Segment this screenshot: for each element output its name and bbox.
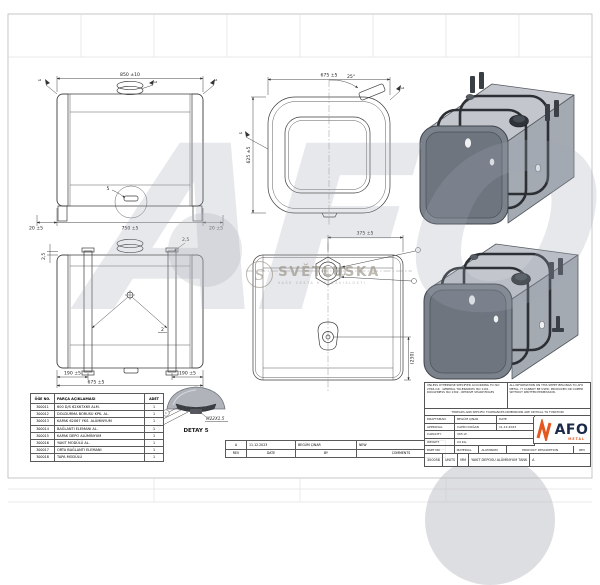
view-front-top: 5 a4 a4 a4 850 ±10 20 ±5 750 ±5 20 ±5 [29,72,223,232]
notes-right: ALL INFORMATION ON THIS SHEET BELONGS TO… [508,383,591,409]
table-row: 300015 KAPAK DEPO ALÜMİNYUM 1 [31,432,164,439]
view-front-straps: 2 2,5 2,5 190 ±5 190 ±5 675 ±5 [41,237,203,388]
col-header-qty: ADET [145,394,164,404]
afo-logo-zigzag-icon [536,419,554,441]
afo-logo-text: AFO [555,423,589,437]
date-label: DATE [497,416,535,424]
part-no-value: 300058 [425,454,443,466]
screw-callout-icon [412,279,417,284]
svg-text:a4: a4 [38,78,42,82]
table-row: 300016 YAKIT MODÜLÜ AL. 1 [31,439,164,446]
table-row: 300014 BAĞLANTI ELEMANI AL. 1 [31,425,164,432]
dim-850: 850 ±10 [120,72,140,78]
dim-2.5-left: 2,5 [41,253,47,260]
title-block: UNLESS OTHERWISE SPECIFIED ACCORDING TO … [424,382,591,467]
screw-callout-icon [416,248,421,253]
parts-table: ÖĞE NO. PARÇA AÇIKLAMASI ADET 300011 600… [30,393,164,462]
units-label: UNITS [443,454,458,466]
svg-text:a4: a4 [154,80,158,84]
dim-675-bottom: 675 ±5 [87,380,104,386]
dim-angle-25: 25° [347,74,355,80]
col-header-description: PARÇA AÇIKLAMASI [55,394,145,404]
rev-label: REV [574,446,590,454]
table-row: 300013 KAPAK 62X67 YKS. ALÜMİNYUM 1 [31,418,164,425]
svg-text:a4: a4 [239,131,243,135]
tank-strap [168,251,176,372]
units-value: MM [458,454,469,466]
view-3d-top-right [420,72,574,224]
svg-text:1: 1 [165,411,167,415]
weight-value: 24 KG. [455,439,535,447]
capacity-label: CAPACITY [425,431,455,439]
weld-symbol-icon: a4 [141,80,158,89]
draftsman-label: DRAFTSMAN [425,416,455,424]
table-row: 300018 TAPA MODÜLÜ 1 [31,454,164,461]
approval-name: CAHİD DOĞAN [455,424,497,432]
view-3d-bottom-right [424,244,578,379]
filler-cap-front [117,239,143,252]
table-row: 300012 DOLDURMA BORUSU KPK. AL. 1 [31,411,164,418]
dim-190-left: 190 ±5 [64,371,81,377]
capacity-value: 305 LT. [455,431,535,439]
critical-note: THREADS AND SPECIFIC TOLERANCES DIMENSIO… [425,409,590,416]
col-header-item-no: ÖĞE NO. [31,394,55,404]
detail-circle [115,186,147,218]
weld-symbol-icon: a4 [390,85,405,100]
part-no-label: PART NO [425,446,455,454]
approval-label: APPROVAL [425,424,455,432]
dim-675-top: 675 ±5 [320,73,337,79]
afo-logo: AFO METAL [533,417,590,445]
draftsman-name: BEGÜM ÇINAR [455,416,497,424]
dim-750: 750 ±5 [121,226,138,232]
detail-view-5: 1 2 3 M22X1.5 DETAY 5 [153,387,228,434]
weight-label: WEIGHT [425,439,455,447]
weld-symbol-icon: a4 [38,78,57,94]
revision-header-row: REV DATE BY COMMENTS [226,449,446,458]
parts-header-row: ÖĞE NO. PARÇA AÇIKLAMASI ADET [31,394,164,404]
dim-190-right: 190 ±5 [179,371,196,377]
view-side-profile: 25° a4 a4 675 ±5 625 ±5 [239,73,405,227]
material-value: ALUMINUM [479,446,507,454]
weld-symbol-icon: a4 [203,78,218,94]
rev-value: A [530,454,536,466]
thread-label: M22X1.5 [206,416,225,421]
revision-table: A 11.12.2023 BEGÜM ÇINAR NEW REV DATE BY… [225,440,446,458]
engineering-drawing-sheet: { "sheet": {"description": "Aluminum fue… [0,0,600,523]
strap-callout: 2 [161,327,164,333]
approval-date: 11.12.2023 [497,424,535,432]
dim-2.5-right: 2,5 [182,237,189,243]
dim-20-right: 20 ±5 [209,226,223,232]
material-label: MATERIAL [455,446,480,454]
view-top: 375 ±5 (230) [246,231,421,393]
svg-text:a4: a4 [214,78,218,82]
filler-cap-front [117,81,143,94]
table-row: 300017 ORTA BAĞLANTI ELEMANI 1 [31,447,164,454]
tank-strap [84,251,92,372]
dim-20-left: 20 ±5 [29,226,43,232]
notes-left: UNLESS OTHERWISE SPECIFIED ACCORDING TO … [425,383,508,409]
afo-logo-subtext: METAL [568,437,585,441]
filler-neck [358,83,385,100]
table-row: 300011 600 D/S 62X67X65 ALM. 1 [31,404,164,411]
product-label: PRODUCT DESCRIPTION [507,446,574,454]
dim-375: 375 ±5 [356,231,373,237]
svg-text:a4: a4 [401,86,405,90]
detail-title: DETAY 5 [183,428,208,434]
dim-230: (230) [410,352,416,365]
product-value: YAKIT DEPOSU ALÜMİNYUM TANK [469,454,530,466]
table-row: A 11.12.2023 BEGÜM ÇINAR NEW [226,441,446,450]
dim-625: 625 ±5 [246,146,252,163]
detail-callout: 5 [107,186,110,192]
weld-symbol-icon: a4 [239,131,268,149]
